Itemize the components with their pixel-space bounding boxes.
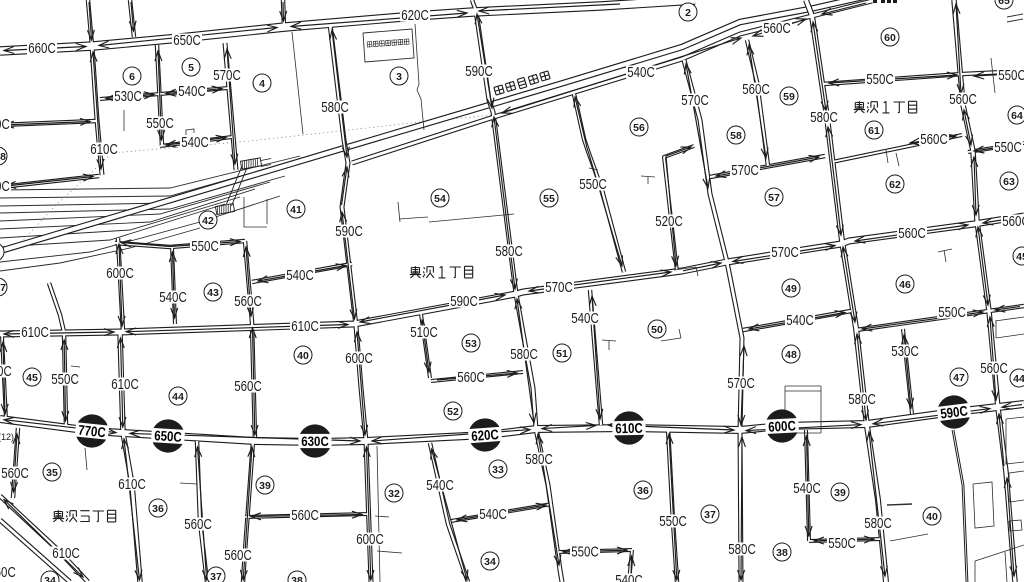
svg-text:540C: 540C bbox=[181, 135, 209, 151]
svg-text:560C: 560C bbox=[898, 226, 926, 242]
svg-text:550C: 550C bbox=[938, 305, 966, 321]
svg-text:35: 35 bbox=[46, 467, 58, 479]
svg-text:550C: 550C bbox=[146, 116, 174, 132]
svg-text:36: 36 bbox=[152, 503, 164, 515]
svg-text:590C: 590C bbox=[335, 224, 363, 240]
svg-text:650C: 650C bbox=[173, 33, 201, 49]
svg-text:580C: 580C bbox=[495, 244, 523, 260]
svg-text:49: 49 bbox=[785, 283, 797, 295]
svg-text:570C: 570C bbox=[731, 163, 759, 179]
svg-text:610C: 610C bbox=[291, 319, 319, 335]
svg-text:32: 32 bbox=[388, 488, 400, 500]
svg-text:580C: 580C bbox=[510, 347, 538, 363]
svg-text:610C: 610C bbox=[21, 325, 49, 341]
svg-text:560C: 560C bbox=[184, 517, 212, 533]
svg-text:560C: 560C bbox=[234, 294, 262, 310]
svg-text:610C: 610C bbox=[90, 142, 118, 158]
svg-text:580C: 580C bbox=[810, 110, 838, 126]
svg-text:5: 5 bbox=[188, 62, 194, 74]
svg-text:590C: 590C bbox=[450, 294, 478, 310]
svg-text:33: 33 bbox=[492, 464, 504, 476]
svg-text:8: 8 bbox=[0, 151, 6, 163]
svg-text:600C: 600C bbox=[356, 532, 384, 548]
svg-text:660C: 660C bbox=[28, 41, 56, 57]
svg-text:44: 44 bbox=[1013, 373, 1024, 385]
svg-text:560C: 560C bbox=[742, 82, 770, 98]
svg-text:47: 47 bbox=[953, 372, 965, 384]
svg-text:540C: 540C bbox=[615, 573, 643, 582]
svg-text:550C: 550C bbox=[51, 372, 79, 388]
svg-text:530C: 530C bbox=[891, 344, 919, 360]
svg-text:540C: 540C bbox=[426, 478, 454, 494]
svg-text:550C: 550C bbox=[659, 514, 687, 530]
svg-text:570C: 570C bbox=[727, 376, 755, 392]
svg-text:630C: 630C bbox=[301, 433, 329, 449]
svg-text:38: 38 bbox=[776, 547, 788, 559]
svg-text:570C: 570C bbox=[213, 68, 241, 84]
svg-text:650C: 650C bbox=[0, 179, 10, 195]
svg-text:580C: 580C bbox=[321, 100, 349, 116]
svg-text:55: 55 bbox=[543, 193, 555, 205]
svg-text:41: 41 bbox=[290, 204, 302, 216]
svg-text:540C: 540C bbox=[627, 65, 655, 81]
svg-text:580C: 580C bbox=[848, 392, 876, 408]
svg-text:590C: 590C bbox=[939, 402, 968, 421]
svg-text:2: 2 bbox=[685, 7, 691, 19]
svg-text:610C: 610C bbox=[118, 477, 146, 493]
svg-text:650C: 650C bbox=[154, 427, 182, 445]
svg-text:550C: 550C bbox=[994, 140, 1022, 156]
svg-text:37: 37 bbox=[704, 509, 716, 521]
svg-text:600C: 600C bbox=[106, 266, 134, 282]
svg-text:560C: 560C bbox=[234, 379, 262, 395]
svg-text:50: 50 bbox=[651, 324, 663, 336]
svg-text:34: 34 bbox=[484, 556, 496, 568]
svg-text:560C: 560C bbox=[980, 361, 1008, 377]
svg-text:60: 60 bbox=[884, 32, 896, 44]
svg-text:560C: 560C bbox=[1, 466, 29, 482]
svg-text:51: 51 bbox=[556, 348, 568, 360]
svg-text:45: 45 bbox=[26, 372, 38, 384]
svg-text:63: 63 bbox=[1003, 176, 1015, 188]
svg-text:560C: 560C bbox=[457, 370, 485, 386]
svg-text:550C: 550C bbox=[866, 72, 894, 88]
svg-text:550C: 550C bbox=[998, 68, 1024, 84]
svg-text:610C: 610C bbox=[52, 546, 80, 562]
svg-text:57: 57 bbox=[768, 192, 780, 204]
svg-text:42: 42 bbox=[202, 215, 214, 227]
svg-text:44: 44 bbox=[172, 391, 184, 403]
svg-text:560C: 560C bbox=[224, 548, 252, 564]
svg-text:48: 48 bbox=[785, 349, 797, 361]
svg-text:770C: 770C bbox=[77, 422, 106, 441]
svg-text:540C: 540C bbox=[786, 313, 814, 329]
svg-text:54: 54 bbox=[434, 193, 446, 205]
svg-text:40: 40 bbox=[926, 511, 938, 523]
svg-text:56: 56 bbox=[633, 122, 645, 134]
svg-text:520C: 520C bbox=[655, 214, 683, 230]
svg-text:540C: 540C bbox=[159, 290, 187, 306]
svg-text:540C: 540C bbox=[286, 268, 314, 284]
svg-text:34: 34 bbox=[44, 575, 56, 582]
svg-text:620C: 620C bbox=[471, 426, 500, 444]
svg-text:53: 53 bbox=[465, 338, 477, 350]
svg-text:570C: 570C bbox=[681, 93, 709, 109]
svg-text:4: 4 bbox=[259, 78, 265, 90]
svg-text:570C: 570C bbox=[771, 245, 799, 261]
svg-text:620C: 620C bbox=[401, 8, 429, 24]
svg-text:43: 43 bbox=[207, 287, 219, 299]
svg-text:540C: 540C bbox=[793, 481, 821, 497]
svg-text:3: 3 bbox=[396, 71, 402, 83]
svg-text:6: 6 bbox=[129, 71, 135, 83]
svg-text:600C: 600C bbox=[0, 117, 10, 133]
svg-text:570C: 570C bbox=[545, 280, 573, 296]
svg-text:36: 36 bbox=[637, 485, 649, 497]
svg-text:610C: 610C bbox=[111, 377, 139, 393]
svg-text:58: 58 bbox=[730, 130, 742, 142]
svg-text:40: 40 bbox=[297, 350, 309, 362]
svg-text:530C: 530C bbox=[114, 89, 142, 105]
svg-text:540C: 540C bbox=[479, 507, 507, 523]
svg-text:600C: 600C bbox=[345, 351, 373, 367]
svg-text:59: 59 bbox=[783, 91, 795, 103]
svg-text:65: 65 bbox=[998, 0, 1010, 7]
svg-text:46: 46 bbox=[899, 279, 911, 291]
svg-text:560C: 560C bbox=[0, 565, 16, 581]
svg-text:39: 39 bbox=[259, 480, 271, 492]
svg-text:540C: 540C bbox=[178, 84, 206, 100]
svg-text:560C: 560C bbox=[1002, 214, 1024, 230]
svg-text:560C: 560C bbox=[0, 364, 12, 380]
svg-text:62: 62 bbox=[889, 179, 901, 191]
svg-text:45: 45 bbox=[1016, 251, 1024, 263]
svg-text:610C: 610C bbox=[615, 420, 643, 436]
svg-text:580C: 580C bbox=[728, 542, 756, 558]
svg-text:560C: 560C bbox=[763, 21, 791, 37]
svg-text:7: 7 bbox=[0, 282, 6, 294]
svg-text:560C: 560C bbox=[920, 132, 948, 148]
svg-text:(12): (12) bbox=[0, 432, 14, 442]
svg-text:550C: 550C bbox=[828, 536, 856, 552]
svg-text:38: 38 bbox=[291, 575, 303, 582]
svg-text:590C: 590C bbox=[465, 64, 493, 80]
svg-text:560C: 560C bbox=[949, 92, 977, 108]
svg-text:64: 64 bbox=[1011, 110, 1023, 122]
svg-text:510C: 510C bbox=[410, 325, 438, 341]
svg-text:39: 39 bbox=[834, 487, 846, 499]
svg-text:61: 61 bbox=[868, 125, 880, 137]
svg-text:550C: 550C bbox=[579, 177, 607, 193]
svg-text:580C: 580C bbox=[525, 452, 553, 468]
svg-text:540C: 540C bbox=[571, 311, 599, 327]
svg-text:560C: 560C bbox=[291, 508, 319, 524]
svg-text:37: 37 bbox=[210, 571, 222, 582]
svg-text:550C: 550C bbox=[191, 239, 219, 255]
svg-text:52: 52 bbox=[447, 406, 459, 418]
svg-text:600C: 600C bbox=[768, 417, 796, 434]
svg-text:580C: 580C bbox=[864, 516, 892, 532]
svg-text:550C: 550C bbox=[571, 545, 599, 561]
